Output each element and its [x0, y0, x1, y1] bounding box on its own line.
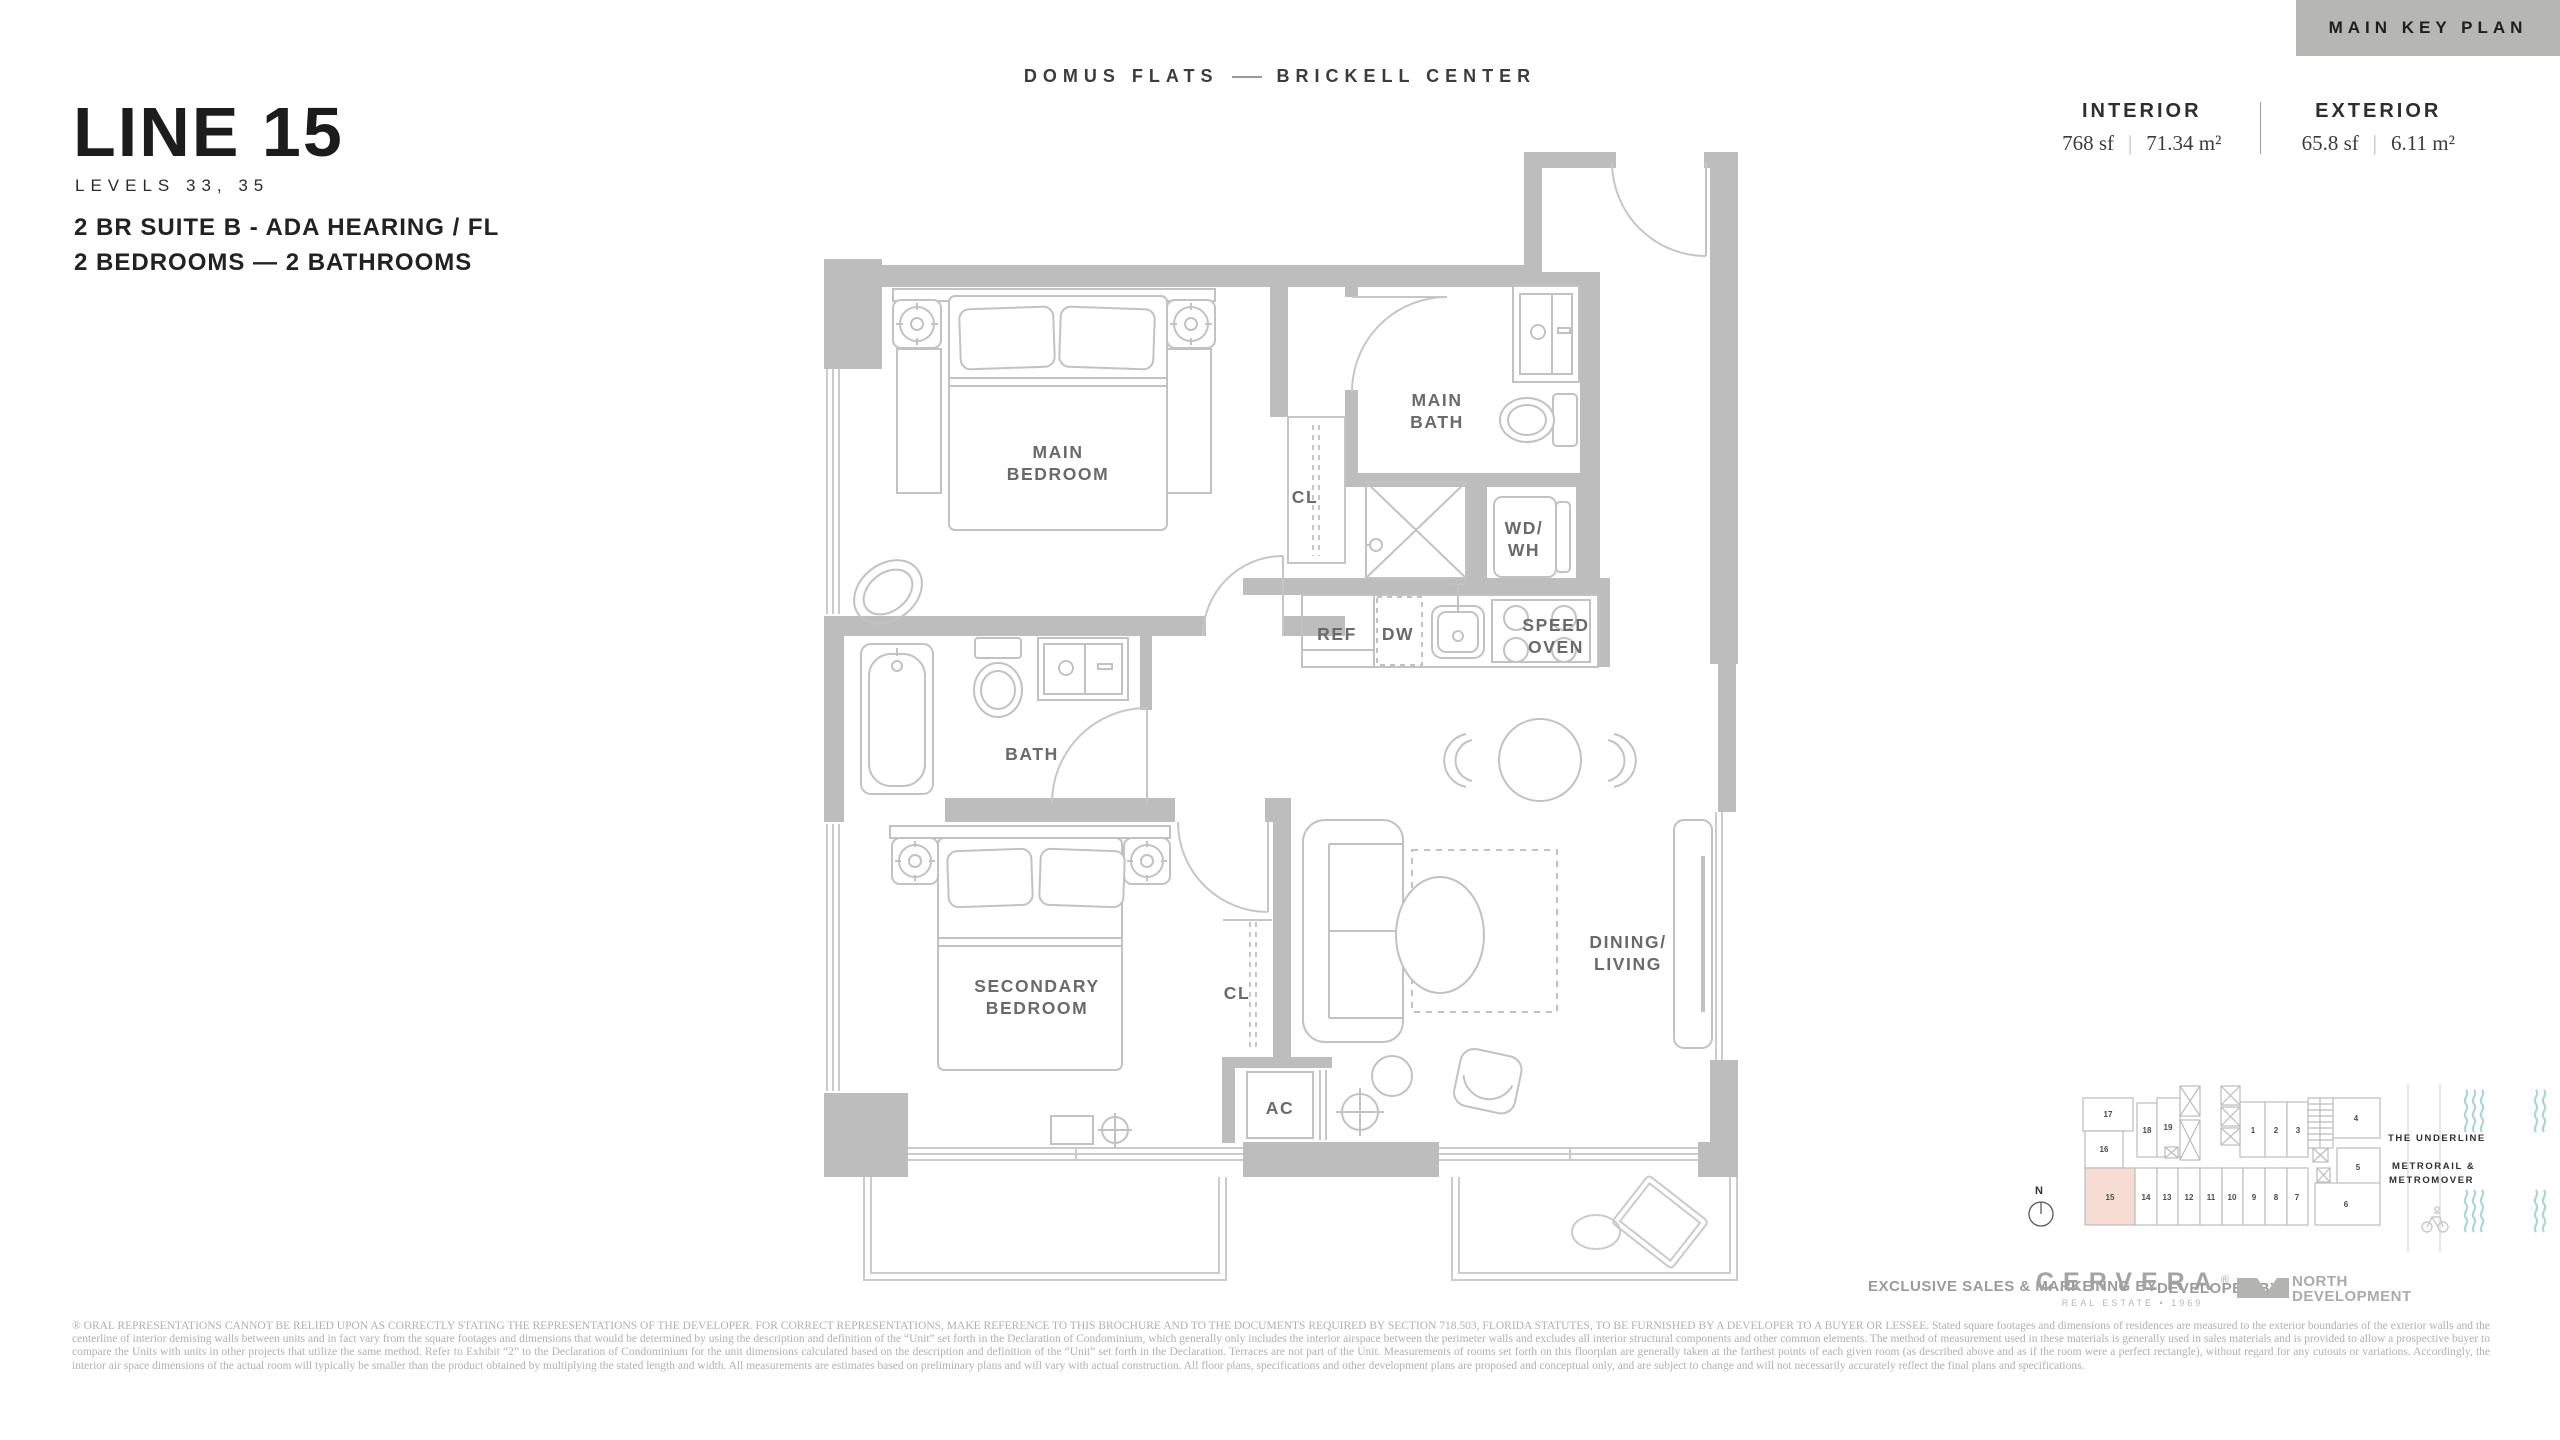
exterior-label: EXTERIOR	[2267, 100, 2491, 123]
cyclist-icon	[2422, 1207, 2448, 1232]
refrigerator-label: REF	[1317, 624, 1357, 644]
underline-label: THE UNDERLINE	[2388, 1133, 2486, 1144]
brand-right: BRICKELL CENTER	[1276, 66, 1536, 87]
living-dining-furniture	[1303, 719, 1712, 1116]
main-bedroom-label: MAIN	[1032, 442, 1083, 462]
exterior-stat: EXTERIOR 65.8 sf | 6.11 m²	[2267, 100, 2491, 156]
north-label: N	[2035, 1185, 2045, 1197]
keyplan-num: 11	[2207, 1193, 2216, 1202]
washer-dryer-label: WD/	[1505, 518, 1544, 538]
keyplan-num: 10	[2228, 1193, 2237, 1202]
dining-living-label: DINING/	[1589, 932, 1666, 952]
keyplan-num: 9	[2252, 1193, 2257, 1202]
brand-header: DOMUS FLATS BRICKELL CENTER	[0, 66, 2560, 87]
key-plan: 17 16 18 19 1 2 3 4 5 6 15 14 13 12 11 1…	[2020, 1082, 2560, 1258]
floor-plan: MAIN BEDROOM MAIN BATH CL WD/ WH REF DW …	[824, 147, 1740, 1297]
interior-stat: INTERIOR 768 sf | 71.34 m²	[2030, 100, 2254, 156]
area-stats: INTERIOR 768 sf | 71.34 m² EXTERIOR 65.8…	[2030, 100, 2490, 156]
main-bedroom-furniture	[842, 289, 1215, 637]
north-development-logo-icon	[2237, 1276, 2289, 1300]
water-squiggles-icon	[2465, 1090, 2545, 1232]
metro-label: METRORAIL &	[2392, 1161, 2475, 1172]
keyplan-num: 5	[2356, 1163, 2361, 1172]
keyplan-num: 6	[2344, 1200, 2349, 1209]
stats-divider	[2260, 102, 2261, 154]
exterior-m2: 6.11 m²	[2391, 131, 2455, 156]
balconies	[864, 1175, 1737, 1280]
north-development-name: NORTH DEVELOPMENT	[2292, 1274, 2412, 1304]
main-closet-label: CL	[1292, 487, 1319, 507]
exterior-sf: 65.8 sf	[2302, 131, 2359, 156]
secondary-closet-label: CL	[1224, 983, 1251, 1003]
main-bath-label: MAIN	[1411, 390, 1462, 410]
speed-oven-label: SPEED	[1522, 615, 1589, 635]
interior-sf: 768 sf	[2062, 131, 2114, 156]
north-compass: N	[2029, 1185, 2053, 1226]
keyplan-num-15: 15	[2106, 1193, 2115, 1202]
dining-living-label: LIVING	[1594, 954, 1662, 974]
keyplan-num: 12	[2185, 1193, 2194, 1202]
keyplan-num: 16	[2100, 1145, 2109, 1154]
keyplan-stairs	[2308, 1098, 2333, 1148]
ac-label: AC	[1266, 1098, 1294, 1118]
brand-left: DOMUS FLATS	[1024, 66, 1219, 87]
stat-separator: |	[2373, 131, 2377, 156]
metro-label: METROMOVER	[2389, 1175, 2474, 1186]
keyplan-num: 1	[2251, 1126, 2256, 1135]
unit-levels: LEVELS 33, 35	[75, 176, 269, 196]
keyplan-num: 17	[2104, 1110, 2113, 1119]
secondary-bath-fixtures	[861, 638, 1128, 794]
keyplan-num: 18	[2143, 1126, 2152, 1135]
stat-separator: |	[2128, 131, 2132, 156]
cervera-tagline: REAL ESTATE • 1969	[2036, 1298, 2229, 1308]
legal-disclaimer: ® ORAL REPRESENTATIONS CANNOT BE RELIED …	[72, 1320, 2490, 1373]
washer-dryer-label: WH	[1508, 540, 1540, 560]
bath-label: BATH	[1005, 744, 1059, 764]
unit-room-count: 2 BEDROOMS — 2 BATHROOMS	[74, 249, 472, 277]
secondary-bedroom-label: BEDROOM	[986, 998, 1089, 1018]
keyplan-num: 4	[2354, 1114, 2359, 1123]
brochure-page: MAIN KEY PLAN DOMUS FLATS BRICKELL CENTE…	[0, 0, 2560, 1440]
main-bath-label: BATH	[1410, 412, 1464, 432]
interior-m2: 71.34 m²	[2146, 131, 2221, 156]
developer-name-line: DEVELOPMENT	[2292, 1289, 2412, 1304]
unit-suite-type: 2 BR SUITE B - ADA HEARING / FL	[74, 214, 499, 242]
interior-label: INTERIOR	[2030, 100, 2254, 123]
unit-title: LINE 15	[73, 92, 344, 172]
keyplan-num: 2	[2274, 1126, 2279, 1135]
keyplan-num: 19	[2164, 1123, 2173, 1132]
dishwasher-label: DW	[1382, 624, 1414, 644]
main-key-plan-tab[interactable]: MAIN KEY PLAN	[2296, 0, 2560, 56]
keyplan-num: 3	[2296, 1126, 2301, 1135]
keyplan-num: 13	[2163, 1193, 2172, 1202]
main-bedroom-label: BEDROOM	[1007, 464, 1110, 484]
keyplan-num: 8	[2274, 1193, 2279, 1202]
secondary-bedroom-label: SECONDARY	[974, 976, 1100, 996]
keyplan-num: 14	[2142, 1193, 2151, 1202]
brand-divider-rule	[1232, 76, 1262, 78]
speed-oven-label: OVEN	[1528, 637, 1584, 657]
developer-name-line: NORTH	[2292, 1274, 2412, 1289]
keyplan-num: 7	[2295, 1193, 2300, 1202]
